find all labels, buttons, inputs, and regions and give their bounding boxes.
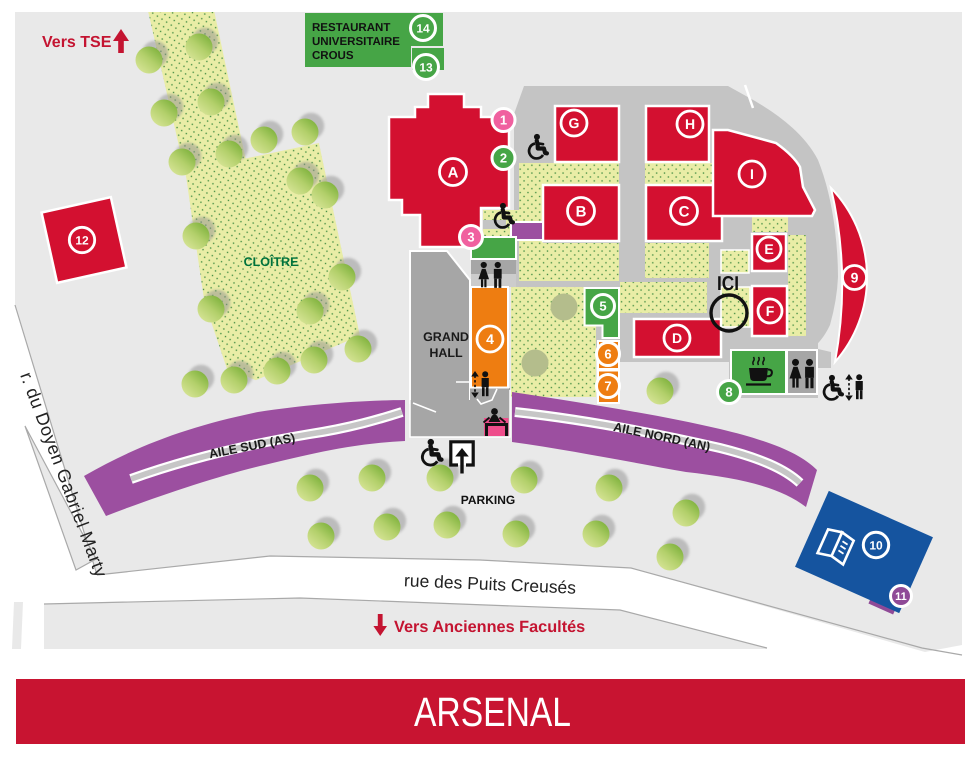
svg-text:rue des Puits Creusés: rue des Puits Creusés — [404, 570, 577, 598]
svg-text:A: A — [448, 164, 459, 181]
svg-text:3: 3 — [467, 230, 474, 245]
svg-text:8: 8 — [725, 385, 732, 400]
svg-text:RESTAURANT: RESTAURANT — [312, 22, 390, 34]
svg-text:CLOÎTRE: CLOÎTRE — [244, 254, 299, 269]
svg-text:F: F — [766, 303, 775, 319]
svg-text:Vers Anciennes Facultés: Vers Anciennes Facultés — [394, 618, 585, 636]
svg-text:ICI: ICI — [717, 273, 739, 295]
svg-text:13: 13 — [419, 60, 433, 74]
svg-text:E: E — [764, 241, 773, 257]
svg-text:9: 9 — [851, 270, 859, 286]
svg-text:GRAND: GRAND — [423, 330, 469, 344]
svg-text:PARKING: PARKING — [461, 493, 515, 507]
svg-text:B: B — [576, 203, 587, 220]
svg-text:10: 10 — [869, 538, 883, 552]
svg-text:ARSENAL: ARSENAL — [414, 689, 571, 735]
svg-text:1: 1 — [500, 113, 507, 128]
svg-text:HALL: HALL — [429, 346, 463, 360]
svg-text:7: 7 — [604, 379, 611, 394]
svg-text:6: 6 — [604, 347, 611, 362]
svg-text:G: G — [569, 115, 580, 131]
svg-text:D: D — [672, 330, 682, 346]
svg-text:C: C — [679, 203, 690, 220]
svg-text:12: 12 — [75, 233, 89, 247]
svg-text:5: 5 — [599, 299, 606, 314]
svg-text:UNIVERSITAIRE: UNIVERSITAIRE — [312, 36, 400, 48]
svg-text:Vers TSE: Vers TSE — [42, 34, 112, 51]
svg-text:14: 14 — [416, 21, 430, 35]
svg-text:I: I — [750, 166, 754, 182]
svg-text:H: H — [685, 116, 695, 132]
svg-text:11: 11 — [895, 591, 907, 603]
svg-text:2: 2 — [500, 151, 507, 166]
svg-text:4: 4 — [486, 331, 494, 347]
svg-text:CROUS: CROUS — [312, 50, 354, 62]
